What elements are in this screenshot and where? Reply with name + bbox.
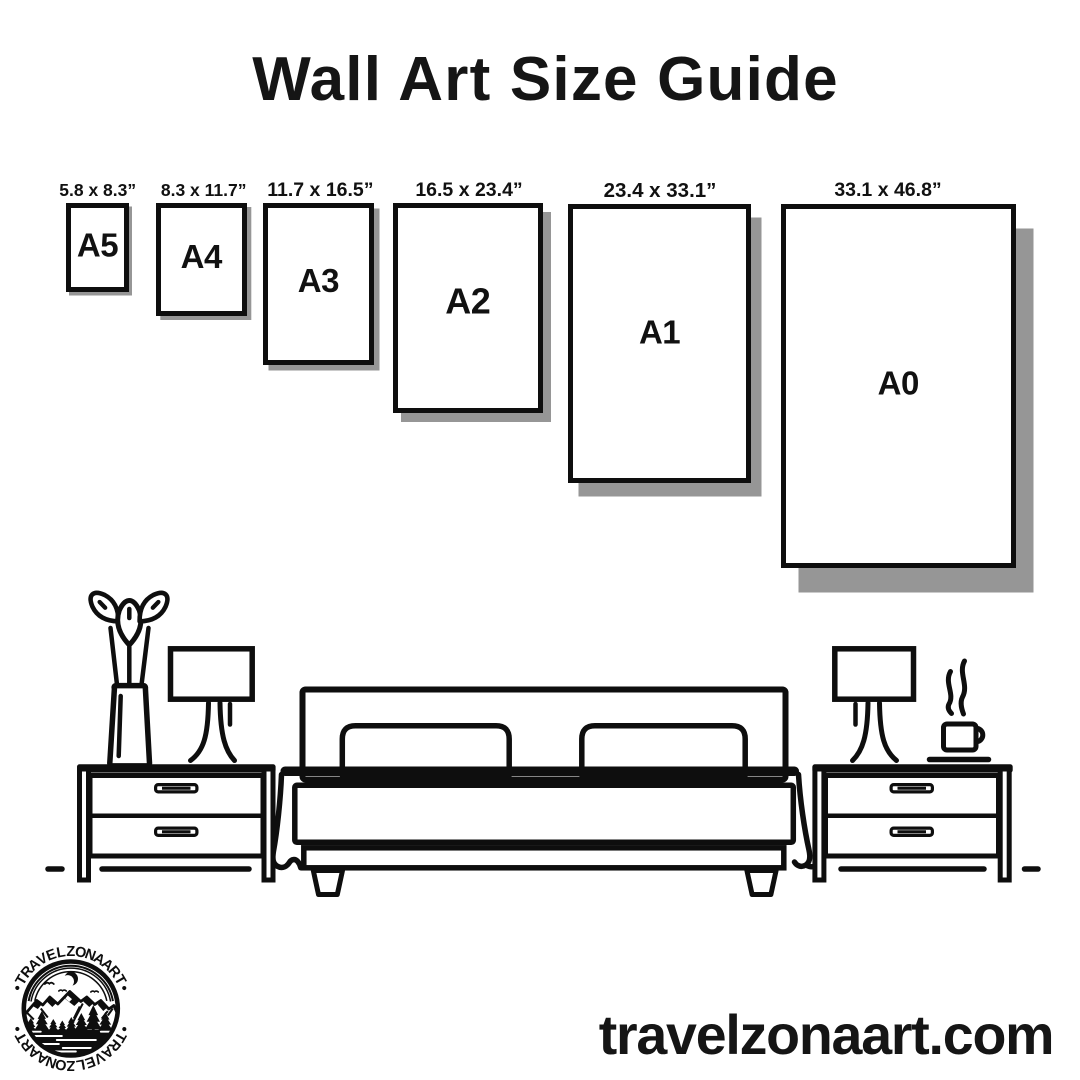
- svg-text:L: L: [55, 944, 67, 961]
- svg-text:L: L: [75, 1055, 87, 1072]
